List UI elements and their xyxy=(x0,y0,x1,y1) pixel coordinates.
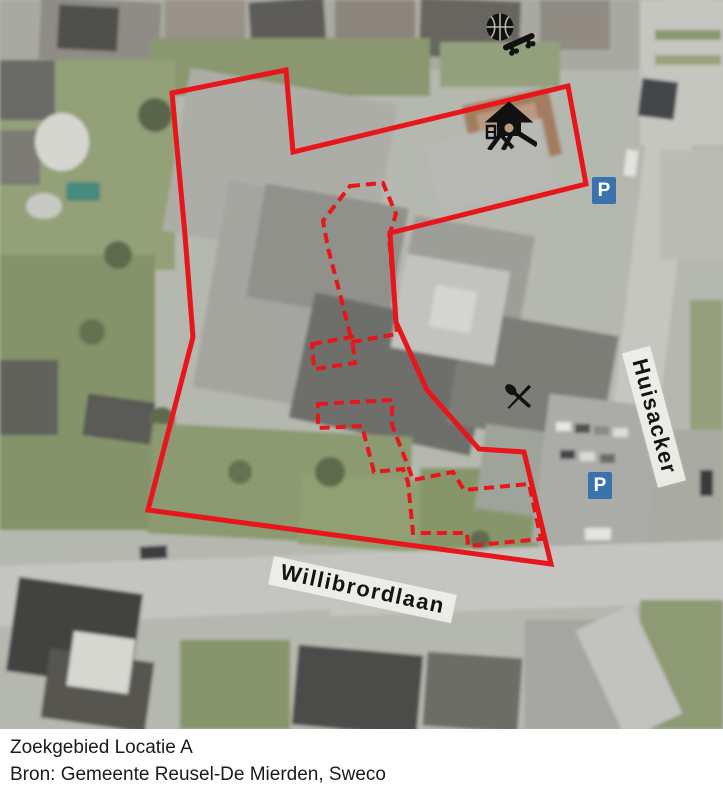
caption-title: Zoekgebied Locatie A xyxy=(10,734,386,761)
aerial-map: P P Huisacker Willibrordlaan xyxy=(0,0,723,729)
parking-icon: P xyxy=(592,177,616,204)
caption-source: Bron: Gemeente Reusel-De Mierden, Sweco xyxy=(10,761,386,788)
aerial-photo xyxy=(0,0,723,729)
caption: Zoekgebied Locatie A Bron: Gemeente Reus… xyxy=(10,734,386,788)
parking-icon: P xyxy=(588,472,612,499)
